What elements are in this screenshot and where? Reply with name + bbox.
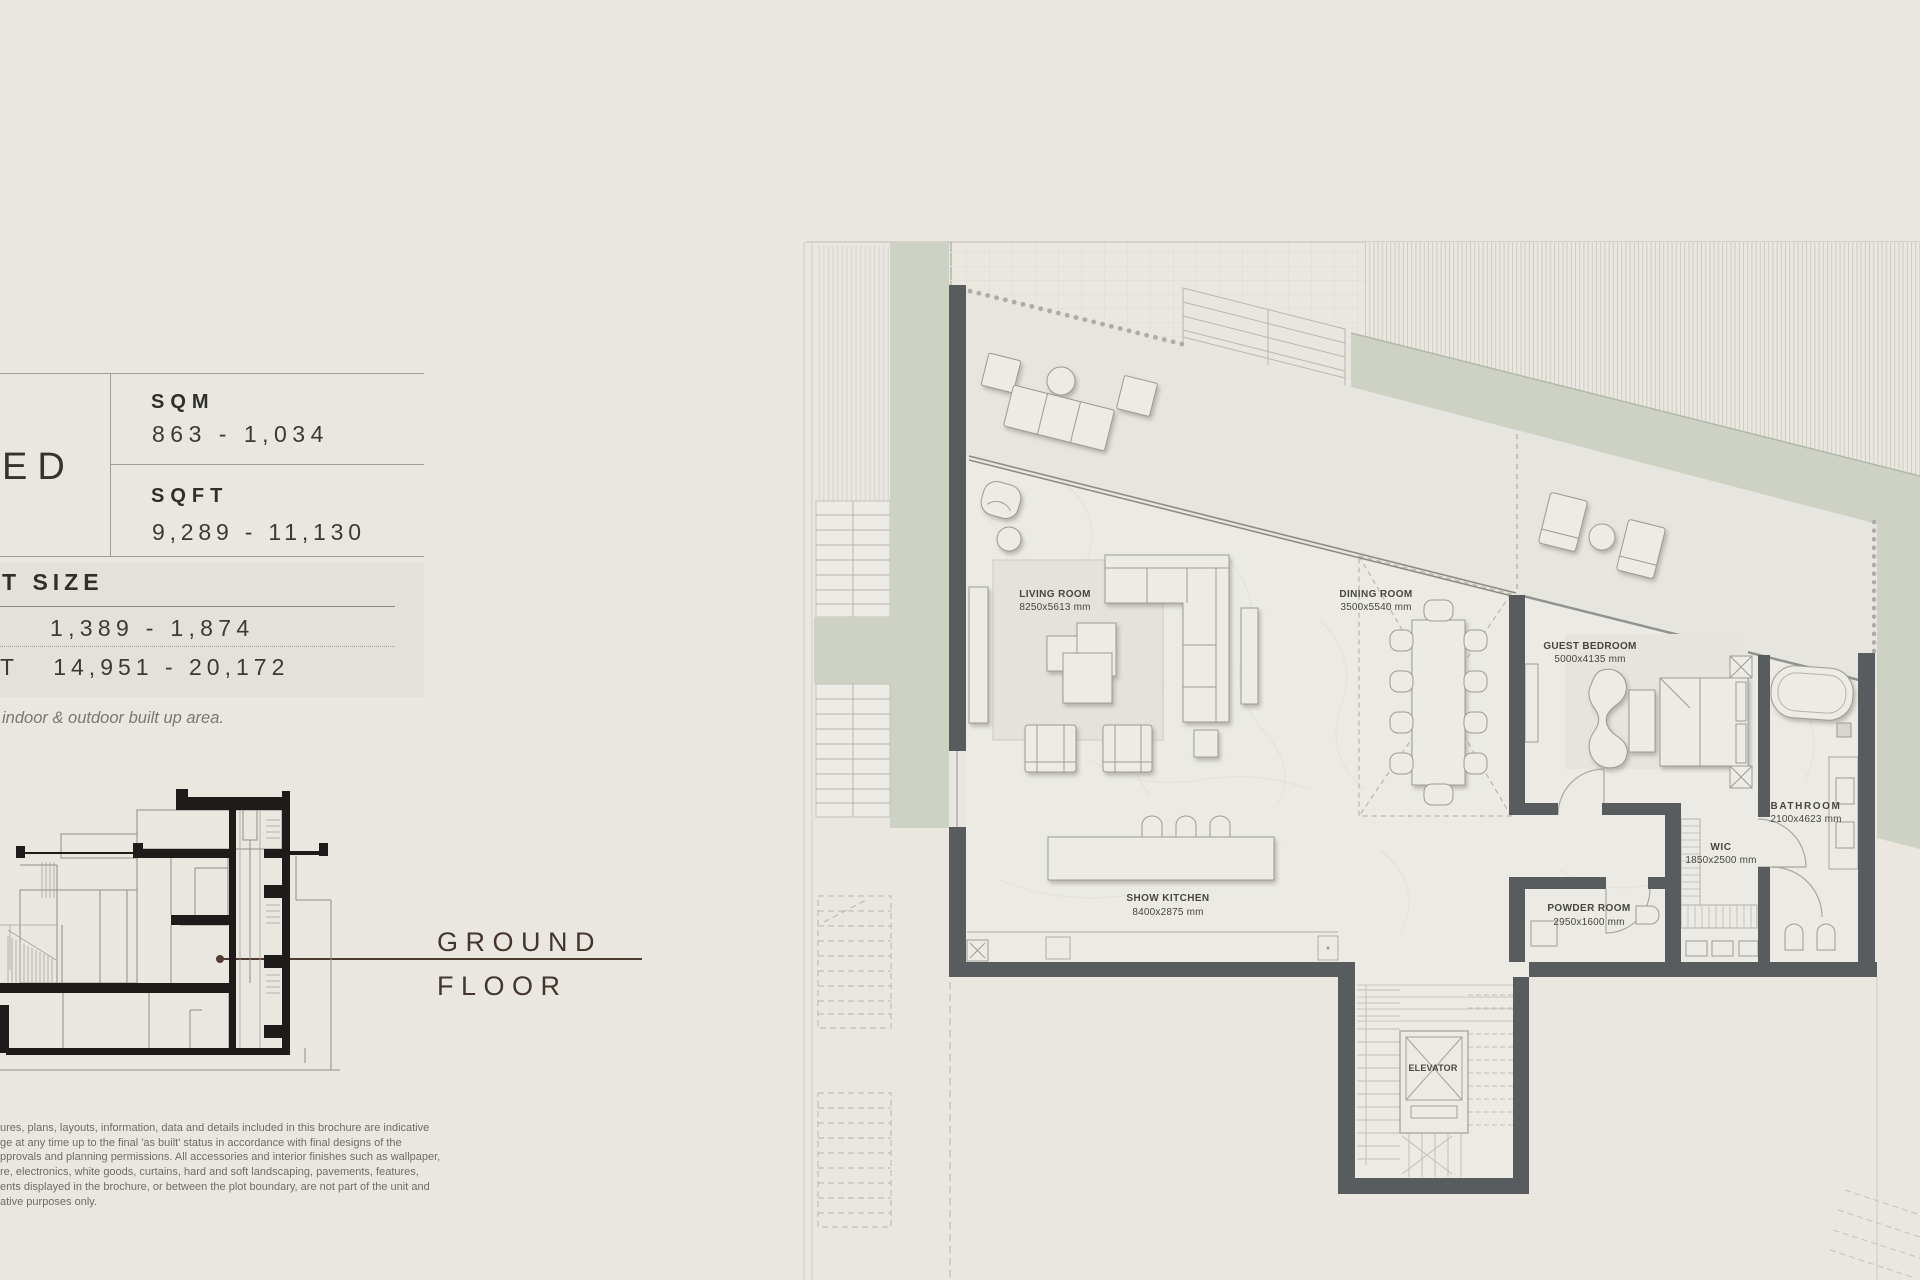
svg-text:POWDER ROOM: POWDER ROOM [1547,903,1630,914]
svg-text:SHOW KITCHEN: SHOW KITCHEN [1126,893,1209,904]
svg-text:2100x4623 mm: 2100x4623 mm [1770,814,1841,825]
svg-text:LIVING ROOM: LIVING ROOM [1019,589,1091,600]
svg-text:5000x4135 mm: 5000x4135 mm [1554,654,1625,665]
svg-text:ELEVATOR: ELEVATOR [1408,1063,1457,1073]
svg-text:DINING ROOM: DINING ROOM [1339,589,1412,600]
svg-text:8250x5613 mm: 8250x5613 mm [1019,602,1090,613]
svg-text:WIC: WIC [1710,842,1731,853]
svg-text:GUEST BEDROOM: GUEST BEDROOM [1543,641,1636,652]
svg-text:2950x1600 mm: 2950x1600 mm [1553,917,1624,928]
svg-text:3500x5540 mm: 3500x5540 mm [1340,602,1411,613]
svg-text:8400x2875 mm: 8400x2875 mm [1132,907,1203,918]
svg-text:1850x2500 mm: 1850x2500 mm [1685,855,1756,866]
svg-text:BATHROOM: BATHROOM [1771,801,1842,812]
